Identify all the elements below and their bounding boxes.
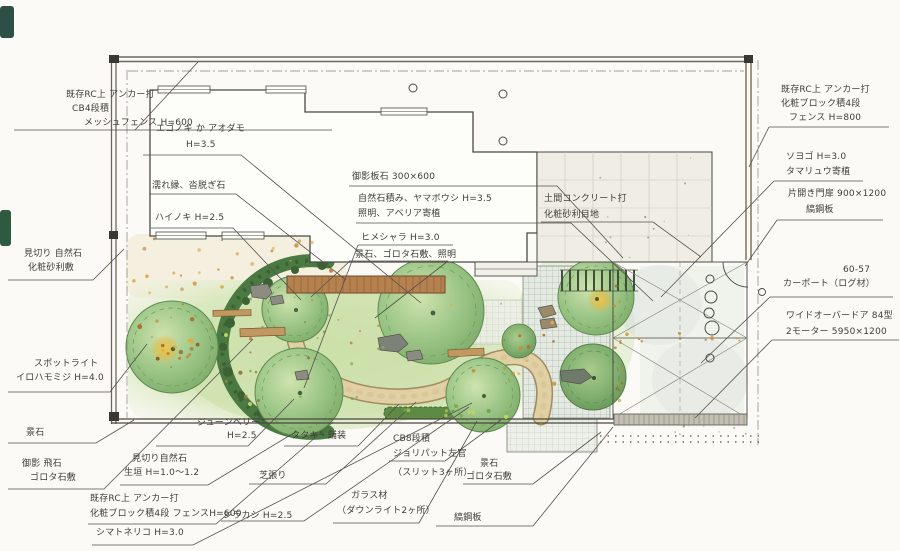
annotation-line: 化粧ブロック積4段 フェンスH=600 xyxy=(90,507,242,522)
annotation-line: タマリュウ寄植 xyxy=(786,165,850,180)
annotation-line: ゴロタ石敷 xyxy=(466,471,512,484)
annotation-r2: ソヨゴ H=3.0 タマリュウ寄植 xyxy=(786,150,850,180)
annotation-a3: スポットライト イロハモミジ H=4.0 xyxy=(16,357,104,385)
annotation-line: シラカシ H=2.5 xyxy=(223,509,292,523)
annotation-line: 化粧砂利目地 xyxy=(544,207,627,223)
annotation-b9: 景石 ゴロタ石敷 xyxy=(466,458,512,484)
annotation-line: 既存RC上 アンカー打 xyxy=(90,492,242,507)
annotation-line: ジョリパット左官 xyxy=(393,447,473,462)
annotation-b5: 芝張り xyxy=(259,469,287,483)
annotation-line: CB8段積 xyxy=(393,432,473,447)
annotation-line: 2モーター 5950×1200 xyxy=(786,324,893,340)
annotation-line: シマトネリコ H=3.0 xyxy=(96,526,242,541)
annotation-line: ソヨゴ H=3.0 xyxy=(786,150,850,165)
annotation-line: エゴノキ か アオダモ xyxy=(156,121,245,137)
annotation-line: ヒメシャラ H=3.0 xyxy=(361,231,440,245)
scan-artifacts xyxy=(0,6,14,246)
annotation-line: 景石 xyxy=(26,426,44,440)
annotation-line: 景石、ゴロタ石敷、照明 xyxy=(355,248,456,262)
annotation-b6: シラカシ H=2.5 xyxy=(223,509,292,523)
garden-plan-sketch: 既存RC上 アンカー打 CB4段積 メッシュフェンス H=600 見切り 自然石… xyxy=(0,0,900,551)
annotation-line: ジューンベリー xyxy=(197,417,260,430)
annotation-line: 照明、アベリア寄植 xyxy=(358,207,492,222)
annotation-c1: エゴノキ か アオダモ H=3.5 xyxy=(156,121,245,153)
annotation-b7: ガラス材 （ダウンライト2ヶ所） xyxy=(337,489,435,519)
annotation-b10: 縞鋼板 xyxy=(454,511,482,525)
annotation-line: 見切り自然石 xyxy=(132,452,199,466)
annotation-line: 縞鋼板 xyxy=(454,511,482,525)
tree-momiji xyxy=(126,301,218,393)
annotation-line: 生垣 H=1.0〜1.2 xyxy=(124,466,199,480)
annotation-line: ゴロタ石敷 xyxy=(30,471,76,485)
annotation-r1: 既存RC上 アンカー打 化粧ブロック積4段 フェンス H=800 xyxy=(781,83,870,125)
annotation-a2: 見切り 自然石 化粧砂利敷 xyxy=(24,247,82,275)
annotation-c6: ヒメシャラ H=3.0 xyxy=(361,231,440,245)
garage-door xyxy=(600,414,762,442)
annotation-line: 既存RC上 アンカー打 xyxy=(66,88,193,102)
annotation-c4: 御影板石 300×600 xyxy=(352,170,435,184)
annotation-line: 化粧砂利敷 xyxy=(28,261,82,275)
annotation-c3: ハイノキ H=2.5 xyxy=(155,211,224,225)
annotation-b3: 既存RC上 アンカー打 化粧ブロック積4段 フェンスH=600 シマトネリコ H… xyxy=(90,492,242,541)
annotation-c8: 土間コンクリート打 化粧砂利目地 xyxy=(544,191,627,223)
annotation-line: スポットライト xyxy=(34,357,104,371)
annotation-line: 化粧ブロック積4段 xyxy=(781,97,870,111)
annotation-r4: 60-57 カーポート（ログ材） xyxy=(783,263,875,291)
shrub-small xyxy=(502,324,536,358)
wood-deck xyxy=(287,276,445,293)
annotation-c5: 自然石積み、ヤマボウシ H=3.5 照明、アベリア寄植 xyxy=(358,192,492,222)
annotation-b1: ジューンベリー H=2.5 xyxy=(197,417,260,443)
annotation-r3: 片開き門扉 900×1200 縞鋼板 xyxy=(788,186,886,218)
annotation-line: （スリット3ヶ所） xyxy=(393,466,473,481)
annotation-line: H=2.5 xyxy=(227,430,260,443)
annotation-line: ガラス材 xyxy=(351,489,435,504)
annotation-line: 御影 飛石 xyxy=(22,457,76,471)
annotation-line: CB4段積 xyxy=(72,102,193,116)
annotation-line: フェンス H=800 xyxy=(789,111,870,125)
annotation-b8: CB8段積 ジョリパット左官 （スリット3ヶ所） xyxy=(393,432,473,481)
annotation-line: 60-57 xyxy=(843,263,875,277)
annotation-line: 景石 xyxy=(480,458,512,471)
annotation-line: タタキ・舗装 xyxy=(291,429,346,443)
annotation-line: 御影板石 300×600 xyxy=(352,170,435,184)
annotation-b2: 見切り自然石 生垣 H=1.0〜1.2 xyxy=(124,452,199,480)
annotation-a5: 御影 飛石 ゴロタ石敷 xyxy=(22,457,76,485)
annotation-a4: 景石 xyxy=(26,426,44,440)
annotation-line: （ダウンライト2ヶ所） xyxy=(337,504,435,519)
annotation-r5: ワイドオーバードア 84型 2モーター 5950×1200 xyxy=(786,308,893,340)
annotation-line: 自然石積み、ヤマボウシ H=3.5 xyxy=(358,192,492,207)
annotation-line: カーポート（ログ材） xyxy=(783,277,875,291)
annotation-line: イロハモミジ H=4.0 xyxy=(16,371,104,385)
annotation-line: H=3.5 xyxy=(186,137,245,153)
annotation-c2: 濡れ縁、沓脱ぎ石 xyxy=(152,179,226,193)
tree xyxy=(446,358,520,432)
annotation-line: 既存RC上 アンカー打 xyxy=(781,83,870,97)
annotation-line: 縞鋼板 xyxy=(806,202,886,218)
annotation-line: 片開き門扉 900×1200 xyxy=(788,186,886,202)
annotation-line: 見切り 自然石 xyxy=(24,247,82,261)
annotation-line: ハイノキ H=2.5 xyxy=(155,211,224,225)
annotation-b4: タタキ・舗装 xyxy=(291,429,346,443)
annotation-line: ワイドオーバードア 84型 xyxy=(786,308,893,324)
annotation-line: 土間コンクリート打 xyxy=(544,191,627,207)
annotation-line: 芝張り xyxy=(259,469,287,483)
annotation-line: 濡れ縁、沓脱ぎ石 xyxy=(152,179,226,193)
annotation-c7: 景石、ゴロタ石敷、照明 xyxy=(355,248,456,262)
